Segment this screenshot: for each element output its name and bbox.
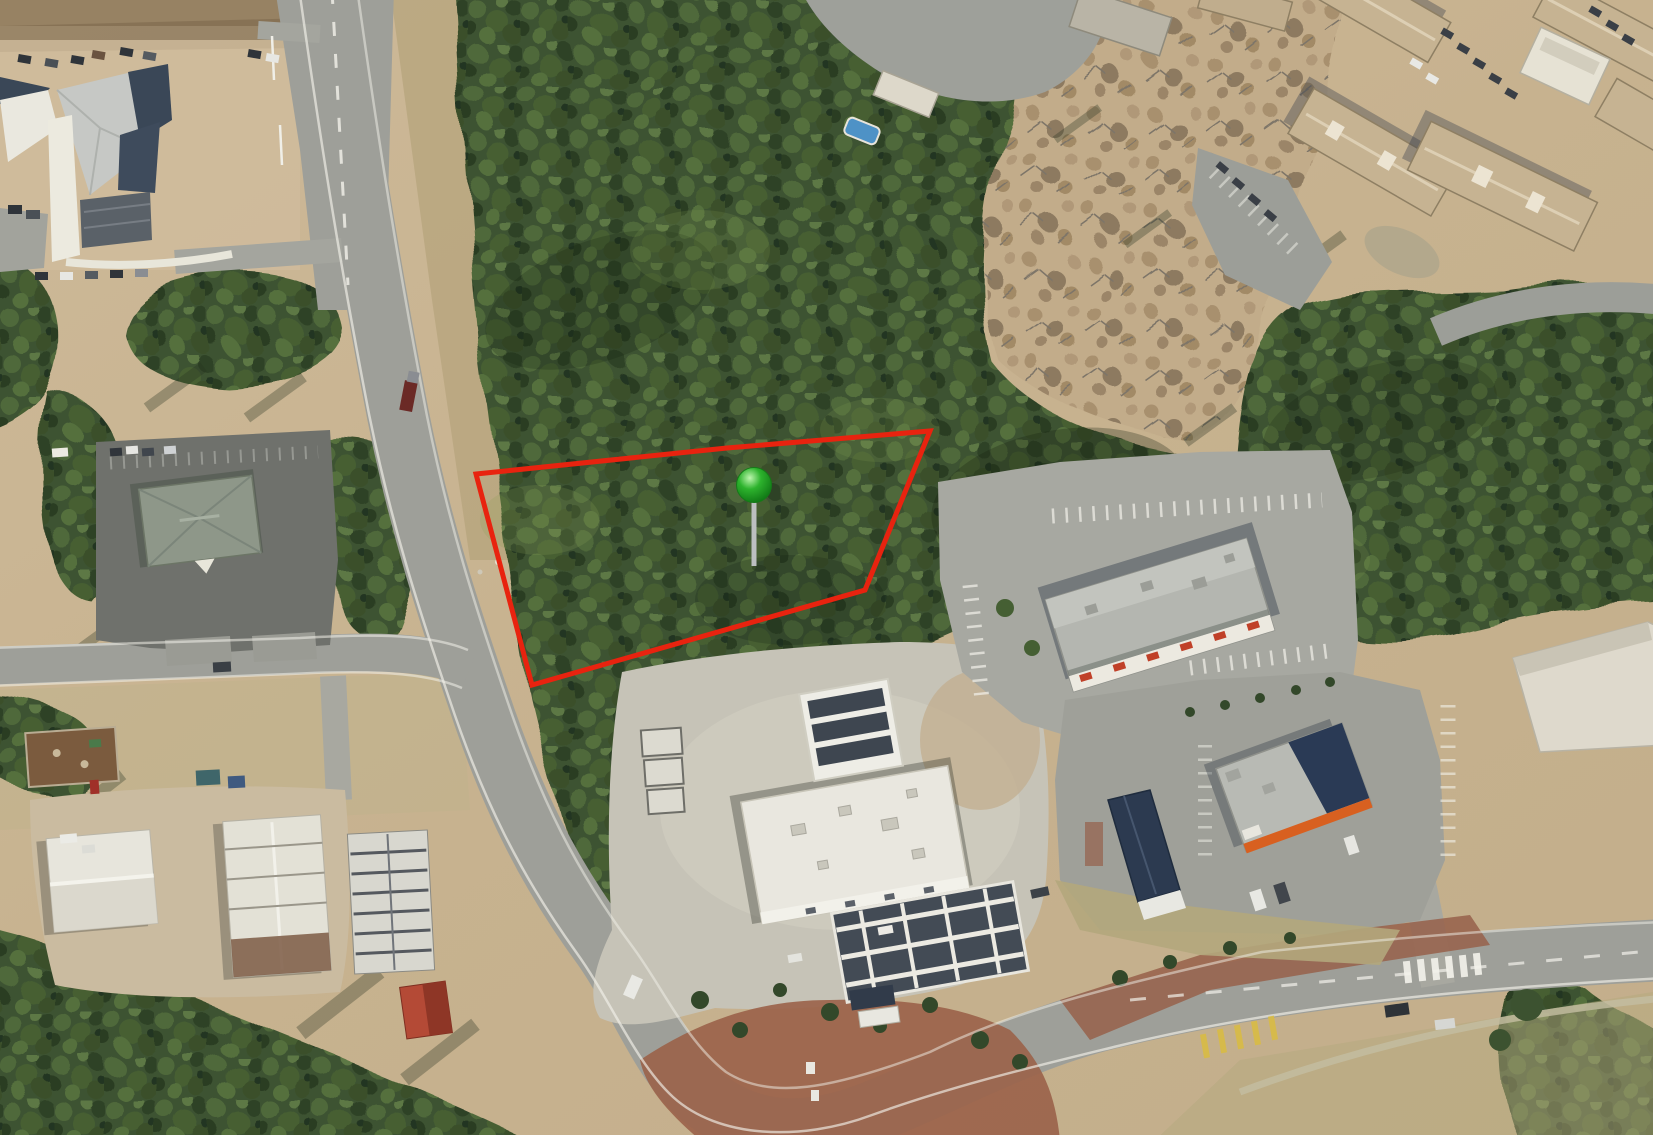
- church-parking: [0, 208, 48, 272]
- aerial-photo: [0, 0, 1653, 1135]
- pin-ball-icon: [737, 468, 772, 503]
- warehouse-a: [36, 830, 158, 936]
- flatbed-trailer: [347, 830, 434, 974]
- red-roof-shed: [400, 981, 453, 1039]
- playground: [25, 727, 119, 787]
- pallet-stacks: [641, 728, 687, 815]
- aerial-map-view[interactable]: [0, 0, 1653, 1135]
- gravel-lot-drive: [333, 676, 339, 800]
- fuel-canopy-north: [799, 679, 903, 781]
- side-road-west: [0, 653, 470, 668]
- warehouse-b: [213, 815, 332, 980]
